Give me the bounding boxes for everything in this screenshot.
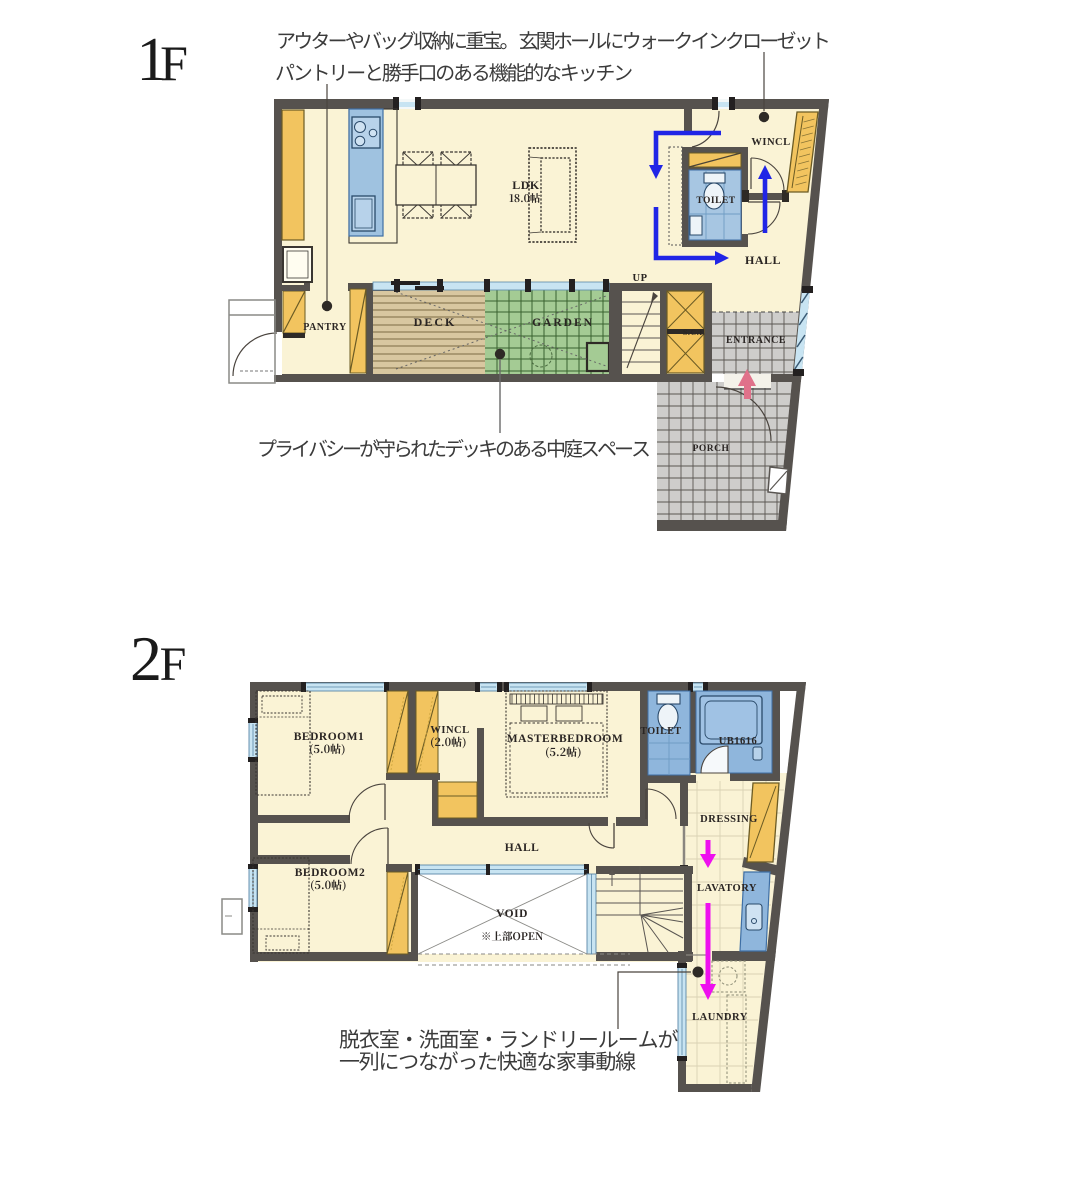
svg-text:S.C.L: S.C.L [683,328,705,337]
svg-text:F: F [160,35,188,91]
svg-text:MASTERBEDROOM: MASTERBEDROOM [507,733,623,745]
svg-text:DRESSING: DRESSING [700,814,758,825]
svg-text:BEDROOM2: BEDROOM2 [295,867,365,879]
svg-text:LAVATORY: LAVATORY [697,883,757,894]
svg-text:F: F [160,638,187,691]
svg-text:DECK: DECK [414,315,457,329]
svg-text:HALL: HALL [505,842,540,854]
svg-text:GARDEN: GARDEN [532,317,594,329]
svg-text:TOILET: TOILET [696,196,735,206]
svg-text:WINCL: WINCL [751,137,790,148]
svg-text:HALL: HALL [745,253,781,267]
svg-text:WINCL: WINCL [430,725,469,736]
svg-text:2: 2 [130,623,162,694]
svg-text:UB1616: UB1616 [719,736,758,747]
svg-text:UP: UP [633,273,648,284]
svg-text:BEDROOM1: BEDROOM1 [294,731,364,743]
svg-text:VOID: VOID [496,908,528,920]
svg-text:ENTRANCE: ENTRANCE [726,335,786,346]
svg-text:LAUNDRY: LAUNDRY [692,1012,748,1023]
svg-text:PORCH: PORCH [693,444,730,454]
svg-text:LDK: LDK [512,178,540,192]
svg-text:PANTRY: PANTRY [303,322,347,333]
svg-text:TOILET: TOILET [640,726,681,737]
